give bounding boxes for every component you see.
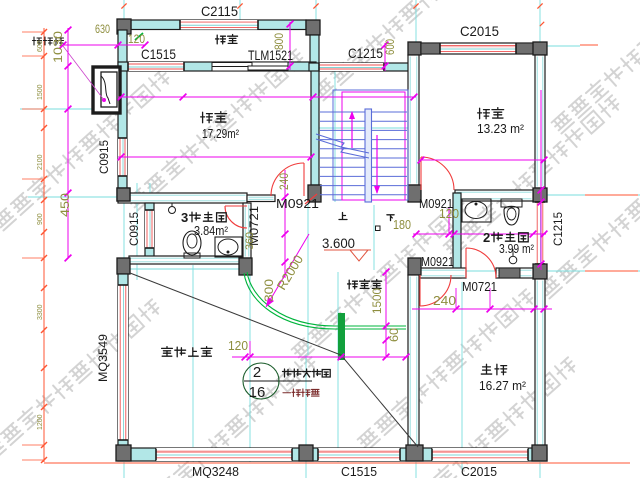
svg-text:3.84m²: 3.84m² [194,223,229,238]
svg-text:1200: 1200 [37,414,44,430]
svg-text:C1515: C1515 [341,464,377,478]
svg-text:C1215: C1215 [348,45,383,61]
svg-text:120: 120 [128,32,145,46]
svg-text:450: 450 [58,193,72,217]
svg-text:1500: 1500 [370,288,384,314]
svg-text:2: 2 [253,364,261,381]
svg-text:60: 60 [387,328,401,342]
svg-text:C2015: C2015 [461,464,497,478]
svg-text:3: 3 [181,210,188,225]
svg-text:3.600: 3.600 [322,235,355,251]
svg-text:800: 800 [272,33,286,50]
svg-text:MQ3549: MQ3549 [96,334,110,382]
svg-text:2: 2 [483,230,490,245]
svg-text:120: 120 [439,206,459,221]
svg-text:C2115: C2115 [201,3,238,19]
svg-text:16.27 m²: 16.27 m² [479,378,527,393]
svg-text:180: 180 [393,217,411,232]
svg-text:900: 900 [37,213,44,225]
svg-text:M0921: M0921 [421,254,454,269]
svg-text:120: 120 [228,338,248,353]
svg-text:TLM1521: TLM1521 [248,47,293,63]
svg-text:C1515: C1515 [141,46,176,62]
svg-text:240: 240 [433,293,456,308]
svg-text:300: 300 [262,279,276,302]
svg-text:17.29m²: 17.29m² [202,126,240,141]
svg-text:1030: 1030 [51,31,65,63]
svg-text:600: 600 [37,40,44,52]
svg-text:M0921: M0921 [276,196,319,211]
svg-text:600: 600 [383,39,397,55]
svg-text:360: 360 [244,232,256,250]
svg-text:C1215: C1215 [551,212,565,246]
svg-text:C0915: C0915 [97,140,111,174]
svg-text:MQ3248: MQ3248 [192,464,239,478]
svg-text:C2015: C2015 [460,23,499,39]
svg-text:M0721: M0721 [462,279,497,294]
svg-text:3300: 3300 [37,304,44,320]
svg-text:16: 16 [249,384,266,401]
svg-text:3.99 m²: 3.99 m² [499,241,535,256]
svg-text:13.23 m²: 13.23 m² [477,121,525,136]
svg-text:1500: 1500 [37,84,44,100]
svg-text:630: 630 [95,22,110,36]
svg-text:240: 240 [277,173,291,190]
svg-text:C0915: C0915 [127,212,141,246]
svg-text:2100: 2100 [37,154,44,170]
